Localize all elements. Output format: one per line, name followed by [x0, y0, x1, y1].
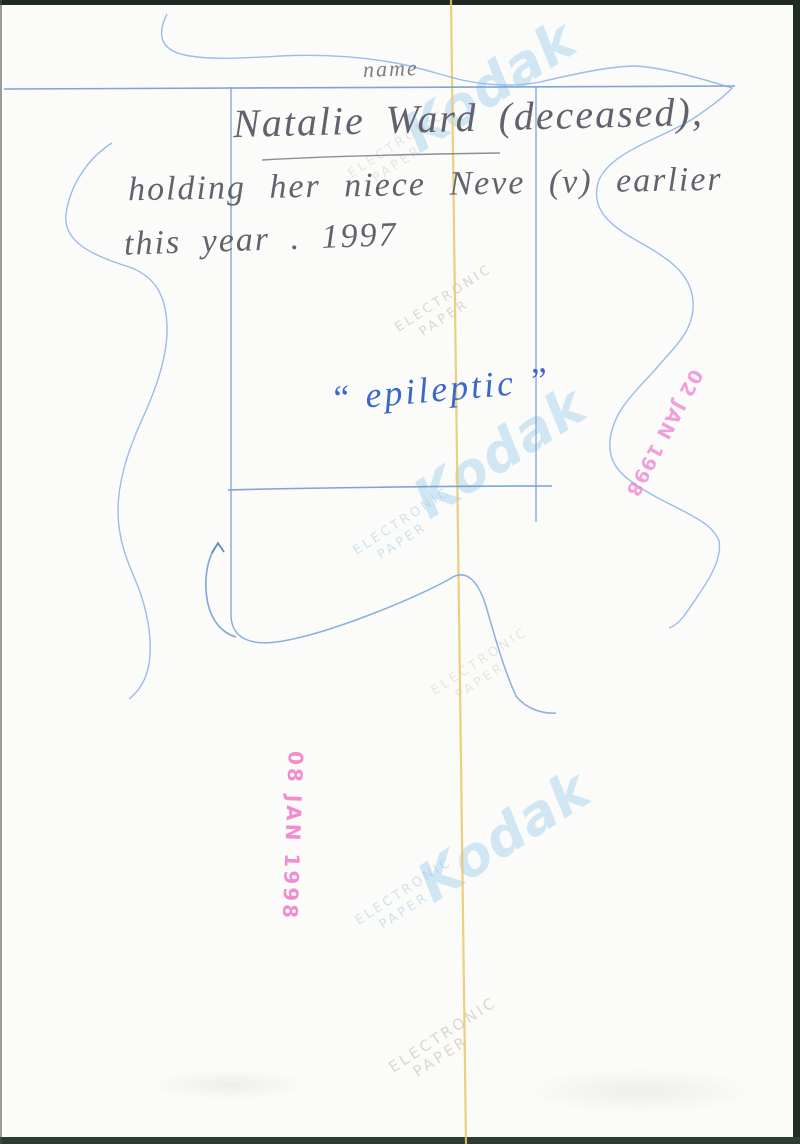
ruled-line-bottom	[228, 486, 552, 490]
ruled-line-top	[4, 86, 735, 89]
photo-back-scan: Kodak Kodak Kodak ELECTRONIC PAPER ELECT…	[0, 0, 800, 1144]
arrow-head-icon	[212, 543, 224, 553]
caption-underline	[262, 153, 500, 160]
field-label-name: name	[363, 55, 420, 83]
